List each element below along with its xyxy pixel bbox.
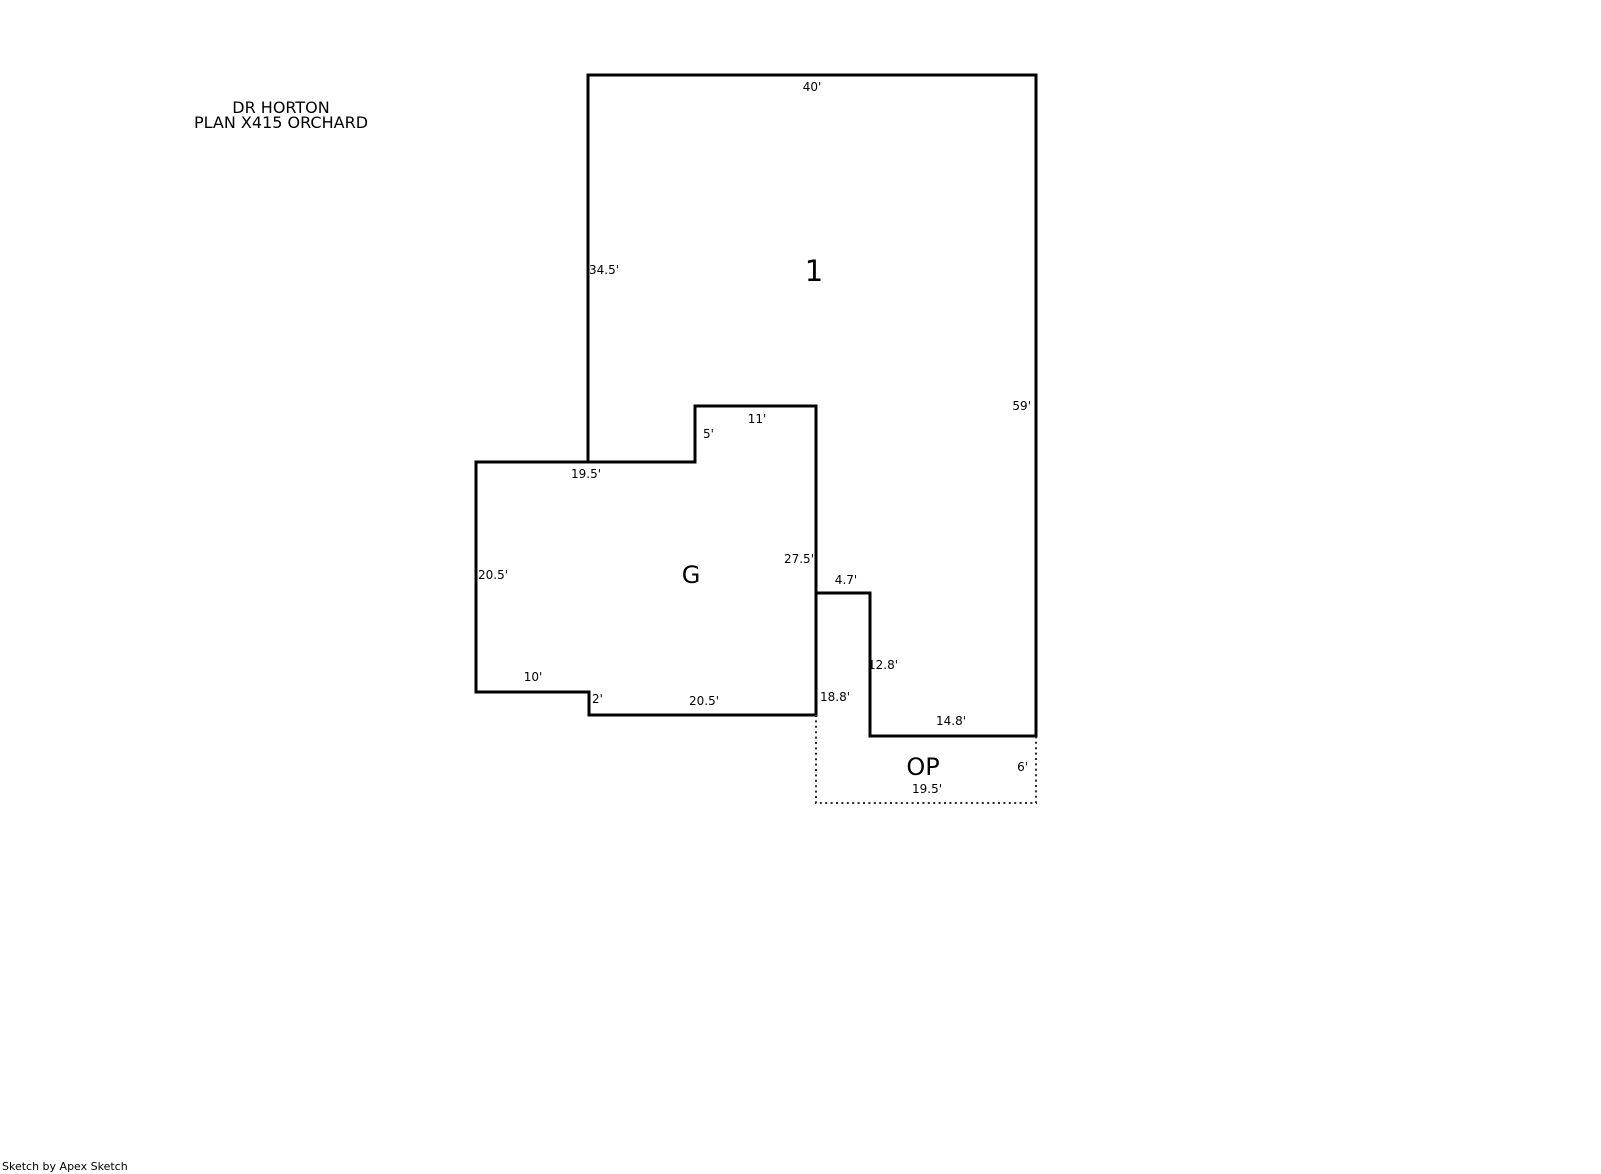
area-label-garage: G (682, 561, 701, 589)
dim-garage-right: 27.5' (784, 553, 814, 566)
dim-patio-inner-horizontal: 14.8' (936, 715, 966, 728)
plan-title: DR HORTON PLAN X415 ORCHARD (194, 100, 368, 130)
dim-area1-top: 40' (803, 81, 822, 94)
dim-notch-step: 5' (703, 428, 714, 441)
sketch-credit: Sketch by Apex Sketch (2, 1160, 128, 1173)
dim-notch-top: 11' (748, 413, 767, 426)
garage-wall-outline (476, 406, 816, 715)
dim-patio-bottom: 19.5' (912, 783, 942, 796)
dim-garage-step-height: 2' (592, 693, 603, 706)
dim-garage-top: 19.5' (571, 468, 601, 481)
dim-patio-inner-vertical: 12.8' (868, 659, 898, 672)
area-label-patio: OP (906, 753, 939, 781)
dim-area1-left: 34.5' (589, 264, 619, 277)
dim-patio-left: 18.8' (820, 691, 850, 704)
plan-title-line2: PLAN X415 ORCHARD (194, 115, 368, 130)
dim-patio-right: 6' (1017, 761, 1028, 774)
floorplan-sketch: DR HORTON PLAN X415 ORCHARD 1 G OP 40' 3… (0, 0, 1601, 1174)
dim-garage-step-width: 10' (524, 671, 543, 684)
area-label-living: 1 (805, 254, 823, 288)
dim-garage-bottom: 20.5' (689, 695, 719, 708)
dim-patio-top: 4.7' (835, 574, 857, 587)
dim-area1-right: 59' (1012, 400, 1031, 413)
floorplan-walls-svg (0, 0, 1601, 1174)
dim-garage-left: 20.5' (478, 569, 508, 582)
